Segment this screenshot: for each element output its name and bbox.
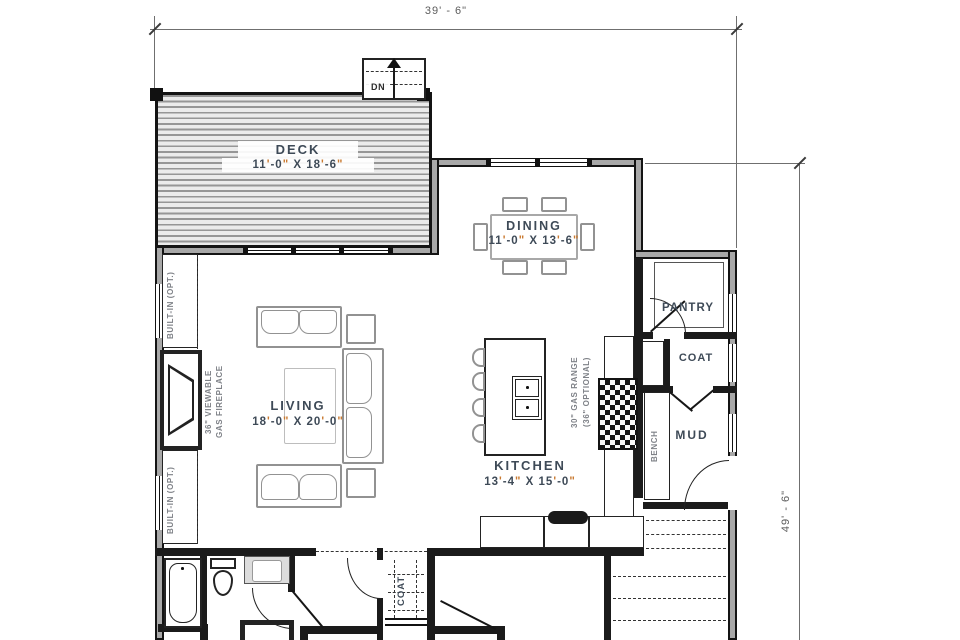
room-size-living: 18'-0" X 20'-0" bbox=[222, 416, 374, 428]
stair-tread bbox=[613, 598, 726, 599]
room-size-deck: 11'-0" X 18'-6" bbox=[222, 158, 374, 172]
door-mullion bbox=[291, 247, 296, 254]
sofa-cushion bbox=[346, 353, 372, 404]
fireplace-annotation: 36" VIEWABLE bbox=[204, 352, 213, 452]
door-leaf bbox=[290, 589, 324, 629]
bathtub-basin bbox=[169, 563, 197, 623]
right-dimension-text: 49' - 6" bbox=[780, 461, 792, 561]
stair-tread bbox=[646, 548, 726, 549]
gas-range bbox=[598, 378, 638, 450]
deck-post bbox=[150, 88, 163, 101]
stair-direction-arrow bbox=[393, 64, 395, 98]
cased-opening-line bbox=[316, 551, 427, 552]
wall-segment bbox=[713, 386, 737, 393]
wall-segment bbox=[604, 556, 611, 640]
wall-segment bbox=[497, 626, 505, 640]
door-arc bbox=[684, 460, 729, 510]
sliding-door bbox=[243, 247, 393, 254]
window bbox=[728, 344, 737, 382]
side-table bbox=[346, 468, 376, 498]
window-mullion bbox=[535, 158, 540, 167]
side-table bbox=[346, 314, 376, 344]
bench-annotation: BENCH bbox=[650, 400, 659, 492]
room-size-dining: 11'-0" X 13'-6" bbox=[458, 235, 610, 247]
room-size-kitchen: 13'-4" X 15'-0" bbox=[456, 476, 604, 488]
room-label-living: LIVING bbox=[238, 398, 358, 413]
room-label-coat: COAT bbox=[666, 352, 726, 364]
kitchen-sink bbox=[548, 511, 588, 524]
room-label-mud: MUD bbox=[662, 428, 722, 442]
top-dimension-text: 39' - 6" bbox=[386, 5, 506, 17]
counter-line bbox=[588, 516, 590, 548]
faucet-dot bbox=[526, 406, 529, 409]
door-arc bbox=[347, 558, 381, 599]
stool bbox=[472, 372, 485, 391]
built-in-annotation: BUILT-IN (OPT.) bbox=[166, 456, 175, 544]
cased-opening bbox=[316, 548, 427, 556]
room-label-pantry: PANTRY bbox=[648, 302, 728, 314]
wall-segment bbox=[300, 626, 378, 634]
door-mullion bbox=[339, 247, 344, 254]
wall-segment bbox=[427, 548, 435, 640]
room-label-dining: DINING bbox=[474, 219, 594, 233]
stool bbox=[472, 348, 485, 367]
wall-segment bbox=[684, 332, 737, 339]
dining-chair bbox=[541, 260, 567, 275]
wall-segment bbox=[634, 250, 737, 259]
wall-segment bbox=[427, 548, 644, 556]
stool bbox=[472, 424, 485, 443]
room-label-kitchen: KITCHEN bbox=[470, 458, 590, 473]
room-label-deck: DECK bbox=[238, 141, 358, 158]
window-mullion bbox=[587, 158, 592, 167]
wall-segment bbox=[300, 626, 308, 640]
window bbox=[728, 414, 737, 452]
dn-label: DN bbox=[366, 81, 390, 93]
window-mullion bbox=[486, 158, 491, 167]
toilet-tank bbox=[210, 558, 236, 569]
closet-box bbox=[642, 341, 664, 386]
dimension-line-right bbox=[799, 163, 800, 640]
door-opening bbox=[728, 456, 737, 510]
arrow-head-icon bbox=[387, 58, 401, 68]
door-leaf bbox=[690, 389, 714, 410]
stair-tread bbox=[613, 620, 726, 621]
dining-chair bbox=[541, 197, 567, 212]
wall-segment bbox=[634, 158, 643, 258]
range-annotation: (36" OPTIONAL) bbox=[582, 342, 591, 442]
dining-chair bbox=[502, 260, 528, 275]
stair-tread bbox=[613, 576, 726, 577]
dining-chair bbox=[502, 197, 528, 212]
wall-segment bbox=[155, 548, 316, 556]
dimension-line-top bbox=[150, 29, 742, 30]
counter-line bbox=[543, 516, 545, 548]
built-in-annotation: BUILT-IN (OPT.) bbox=[166, 262, 175, 348]
stair-tread bbox=[646, 520, 726, 521]
sofa-cushion bbox=[346, 407, 372, 458]
sofa-cushion bbox=[299, 310, 337, 334]
sofa-cushion bbox=[299, 474, 337, 500]
stair-tread bbox=[646, 534, 726, 535]
closet-shelf bbox=[385, 618, 427, 626]
floor-plan: 39' - 6" 49' - 6" DN DECK 11'-0" X 18'-6… bbox=[0, 0, 960, 640]
window bbox=[728, 294, 737, 332]
fireplace-annotation: GAS FIREPLACE bbox=[215, 352, 224, 452]
range-annotation: 30" GAS RANGE bbox=[570, 342, 579, 442]
sofa-cushion bbox=[261, 310, 299, 334]
wall-segment bbox=[430, 158, 439, 255]
witness-line bbox=[645, 163, 805, 164]
faucet-dot bbox=[181, 567, 184, 570]
room-label-coat-closet: COAT bbox=[396, 566, 407, 616]
toilet-bowl bbox=[213, 570, 233, 596]
stool bbox=[472, 398, 485, 417]
vanity-sink bbox=[252, 560, 282, 582]
witness-line bbox=[736, 16, 737, 248]
faucet-dot bbox=[526, 386, 529, 389]
sofa-cushion bbox=[261, 474, 299, 500]
door-mullion bbox=[243, 247, 248, 254]
door-mullion bbox=[388, 247, 393, 254]
